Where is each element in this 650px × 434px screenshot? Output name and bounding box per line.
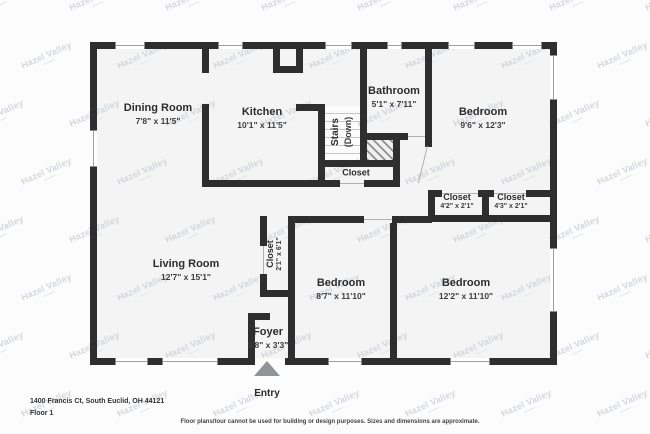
room-label-closet-hall-left: Closet4'2" x 2'1" — [440, 192, 473, 212]
watermark: Hazel Valley — [20, 156, 75, 190]
wall — [428, 190, 435, 222]
room-label-closet-living: Closet2'1" x 6'1" — [265, 237, 285, 270]
room-label-bedroom-middle: Bedroom8'7" x 11'10" — [316, 277, 365, 301]
room-label-dining-room: Dining Room7'8" x 11'5" — [124, 102, 192, 126]
wall — [90, 42, 97, 365]
watermark: Hazel Valley — [20, 272, 75, 306]
window-marker — [550, 55, 557, 100]
window-marker — [387, 42, 402, 49]
floor-label: Floor 1 — [30, 410, 53, 417]
window-marker — [115, 358, 148, 365]
floorplan-canvas: Entry 1400 Francis Ct, South Euclid, OH … — [0, 0, 650, 434]
window-marker — [162, 358, 218, 365]
window-marker — [512, 42, 542, 49]
wall — [288, 216, 364, 223]
watermark: Hazel Valley — [452, 0, 507, 15]
room-label-bedroom-bottom-right: Bedroom12'2" x 11'10" — [439, 277, 493, 301]
wall — [390, 223, 397, 358]
room-label-kitchen: Kitchen10'1" x 11'5" — [237, 106, 286, 130]
watermark: Hazel Valley — [0, 98, 26, 132]
window-marker — [448, 42, 475, 49]
watermark: Hazel Valley — [644, 214, 650, 248]
watermark: Hazel Valley — [548, 0, 603, 15]
watermark: Hazel Valley — [20, 40, 75, 74]
entry-arrow-icon — [254, 361, 280, 376]
window-marker — [550, 248, 557, 312]
window-marker — [325, 42, 352, 49]
wall — [318, 104, 325, 187]
wall — [318, 160, 400, 167]
disclaimer-text: Floor plans/tour cannot be used for buil… — [180, 419, 479, 425]
room-label-bedroom-top-right: Bedroom9'6" x 12'3" — [459, 106, 507, 130]
wall — [90, 42, 557, 49]
room-label-closet-under-stairs: Closet — [342, 167, 370, 178]
wall — [526, 190, 557, 197]
room-label-bathroom: Bathroom5'1" x 7'11" — [368, 85, 420, 109]
wall — [273, 66, 303, 73]
wall — [360, 133, 408, 140]
wall — [248, 313, 270, 320]
room-label-foyer: Foyer3'8" x 3'3" — [248, 326, 288, 350]
window-marker — [328, 358, 362, 365]
watermark: Hazel Valley — [596, 156, 650, 190]
watermark: Hazel Valley — [500, 388, 555, 422]
window-marker — [115, 42, 145, 49]
window-marker — [218, 42, 243, 49]
door-marker — [364, 219, 392, 220]
door-marker — [408, 136, 425, 137]
wall — [285, 358, 557, 365]
watermark: Hazel Valley — [596, 272, 650, 306]
wall — [482, 190, 489, 222]
watermark: Hazel Valley — [308, 388, 363, 422]
wall — [202, 49, 209, 73]
watermark: Hazel Valley — [644, 0, 650, 15]
wall — [392, 216, 432, 223]
room-label-living-room: Living Room12'7" x 15'1" — [153, 258, 220, 282]
wall — [260, 290, 295, 297]
wall — [202, 104, 209, 187]
watermark: Hazel Valley — [68, 0, 123, 15]
window-marker — [90, 130, 97, 167]
watermark: Hazel Valley — [0, 0, 26, 15]
watermark: Hazel Valley — [0, 330, 26, 364]
window-marker — [450, 358, 490, 365]
wall — [393, 140, 400, 187]
watermark: Hazel Valley — [404, 388, 459, 422]
wall — [425, 49, 432, 147]
door-marker — [263, 246, 264, 274]
entry-label: Entry — [254, 388, 280, 399]
watermark: Hazel Valley — [356, 0, 411, 15]
room-label-stairs: Stairs(Down) — [330, 117, 354, 148]
watermark: Hazel Valley — [0, 214, 26, 248]
watermark: Hazel Valley — [644, 330, 650, 364]
watermark: Hazel Valley — [596, 388, 650, 422]
door-marker — [340, 183, 364, 184]
property-address: 1400 Francis Ct, South Euclid, OH 44121 — [30, 398, 164, 405]
room-label-closet-hall-right: Closet4'3" x 2'1" — [494, 192, 527, 212]
watermark: Hazel Valley — [596, 40, 650, 74]
watermark: Hazel Valley — [260, 0, 315, 15]
wall — [428, 215, 557, 222]
wall — [360, 49, 367, 167]
watermark: Hazel Valley — [644, 98, 650, 132]
watermark: Hazel Valley — [164, 0, 219, 15]
wall — [288, 216, 295, 358]
